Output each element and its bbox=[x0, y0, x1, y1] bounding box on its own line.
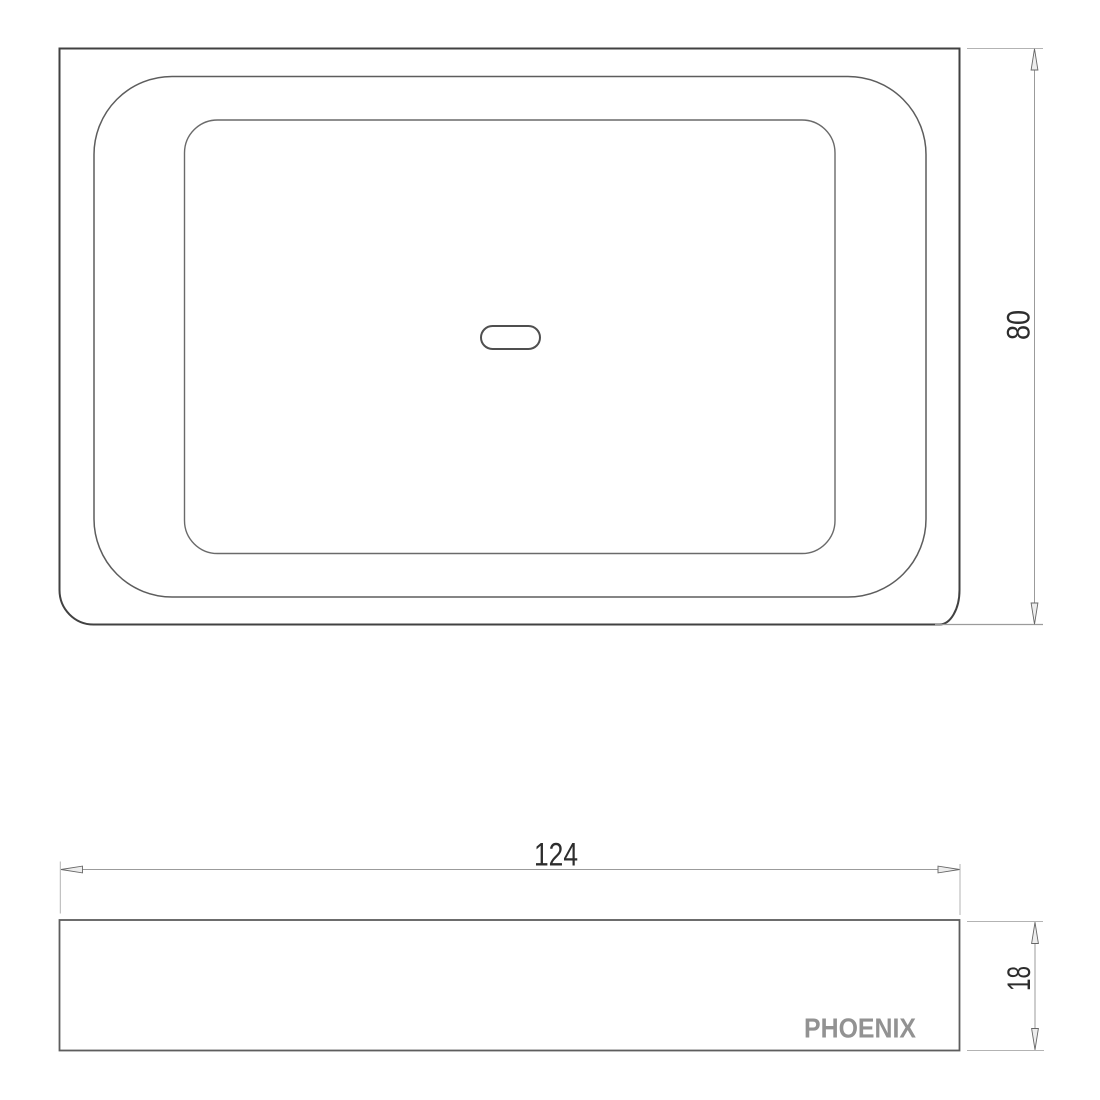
svg-text:124: 124 bbox=[534, 837, 578, 873]
svg-text:18: 18 bbox=[1001, 966, 1037, 991]
svg-text:80: 80 bbox=[1001, 310, 1037, 340]
svg-text:PHOENIX: PHOENIX bbox=[804, 1013, 917, 1044]
